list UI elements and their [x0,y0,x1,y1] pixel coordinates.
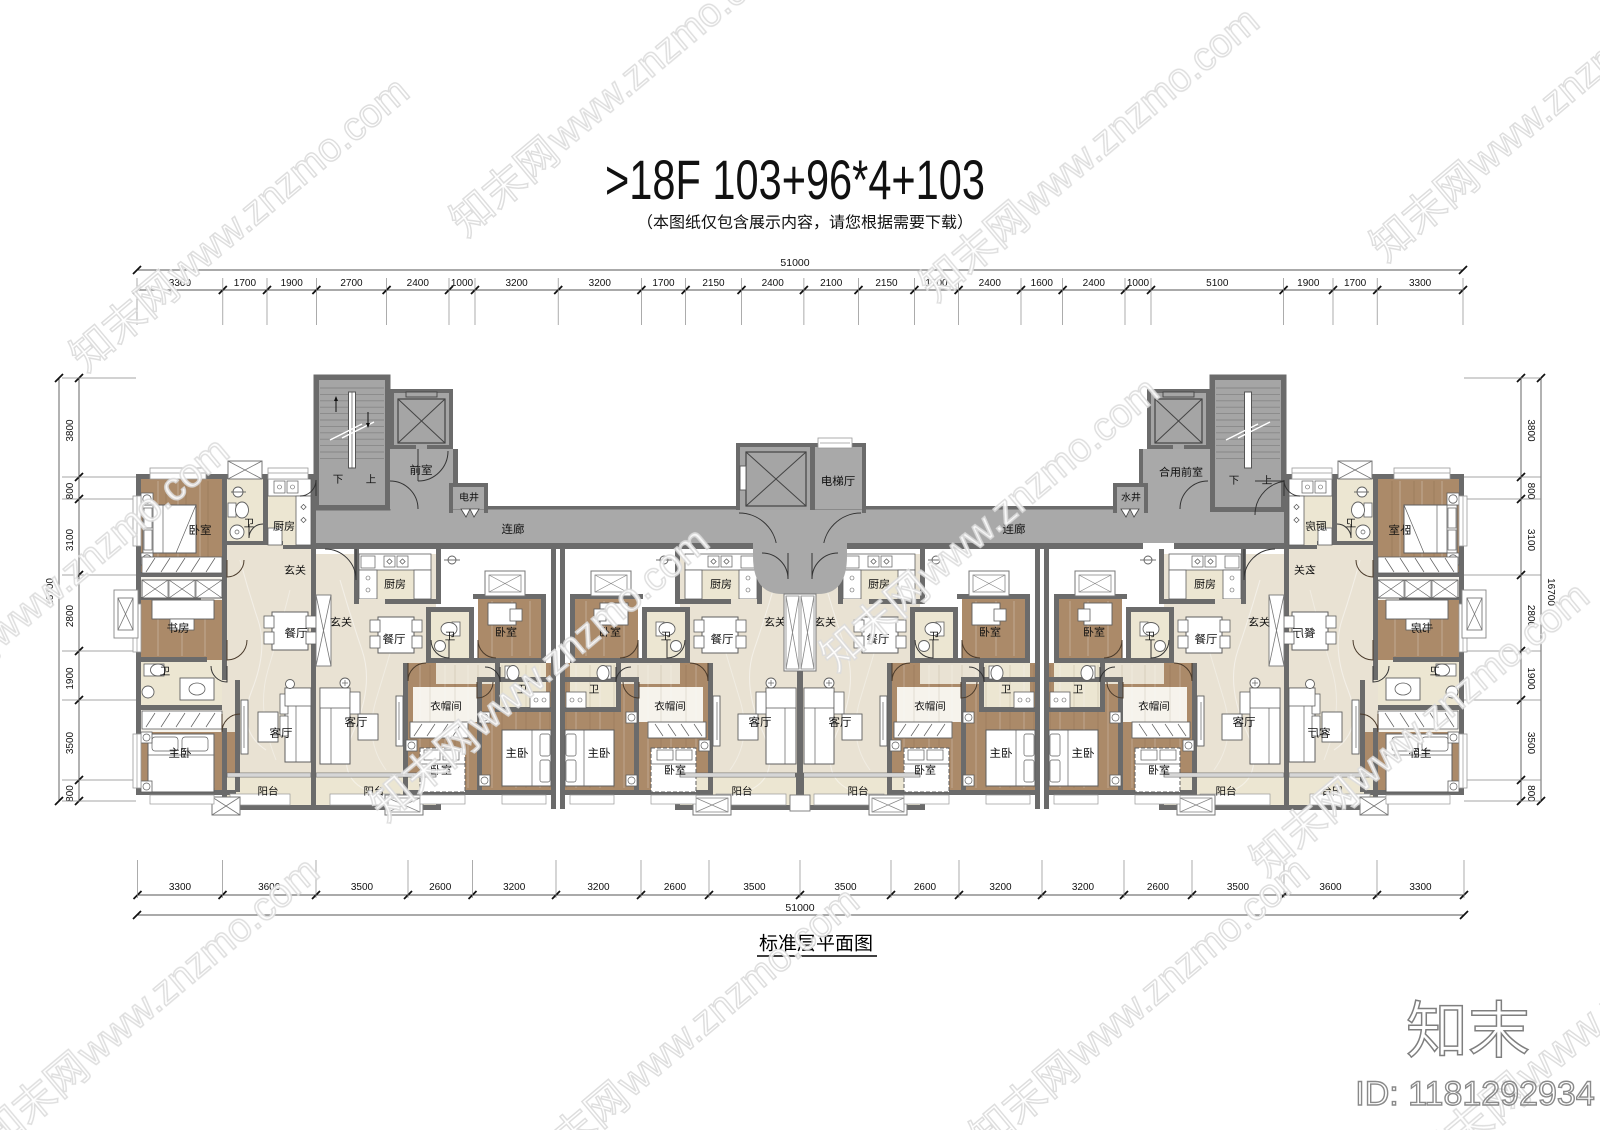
svg-text:1700: 1700 [652,278,675,289]
svg-text:1900: 1900 [281,278,304,289]
svg-text:>18F 103+96*4+103: >18F 103+96*4+103 [605,148,985,211]
svg-text:3500: 3500 [351,882,374,893]
svg-text:2600: 2600 [429,882,452,893]
svg-text:1900: 1900 [65,667,76,690]
svg-text:3500: 3500 [1525,732,1536,755]
svg-text:3300: 3300 [1409,882,1432,893]
svg-text:3800: 3800 [1525,419,1536,442]
svg-text:3200: 3200 [503,882,526,893]
svg-text:2700: 2700 [340,278,363,289]
svg-text:1000: 1000 [451,278,474,289]
svg-text:3300: 3300 [1409,278,1432,289]
svg-text:3100: 3100 [1525,529,1536,552]
svg-text:51000: 51000 [780,257,809,269]
svg-text:3200: 3200 [587,882,610,893]
svg-text:2400: 2400 [979,278,1002,289]
svg-text:2150: 2150 [875,278,898,289]
svg-text:2400: 2400 [762,278,785,289]
svg-text:2800: 2800 [65,604,76,627]
svg-text:2600: 2600 [664,882,687,893]
svg-text:800: 800 [65,785,76,802]
svg-text:1000: 1000 [1127,278,1150,289]
svg-text:1700: 1700 [234,278,257,289]
svg-text:3500: 3500 [65,731,76,754]
svg-text:3200: 3200 [505,278,528,289]
svg-text:1900: 1900 [1297,278,1320,289]
svg-text:2600: 2600 [1147,882,1170,893]
svg-text:2600: 2600 [914,882,937,893]
svg-text:1700: 1700 [1344,278,1367,289]
svg-text:2400: 2400 [407,278,430,289]
svg-text:800: 800 [65,482,76,499]
svg-text:3500: 3500 [743,882,766,893]
svg-text:3200: 3200 [1072,882,1095,893]
svg-text:2400: 2400 [1083,278,1106,289]
svg-text:800: 800 [1525,785,1536,802]
svg-text:1600: 1600 [1031,278,1054,289]
svg-text:3200: 3200 [589,278,612,289]
svg-text:1900: 1900 [1525,667,1536,690]
svg-text:3300: 3300 [169,882,192,893]
svg-text:ID: 1181292934: ID: 1181292934 [1355,1075,1594,1113]
svg-text:3200: 3200 [989,882,1012,893]
svg-text:800: 800 [1525,483,1536,500]
svg-text:5100: 5100 [1206,278,1229,289]
svg-text:2100: 2100 [820,278,843,289]
svg-text:3600: 3600 [1319,882,1342,893]
svg-text:3800: 3800 [65,419,76,442]
svg-text:2150: 2150 [702,278,725,289]
